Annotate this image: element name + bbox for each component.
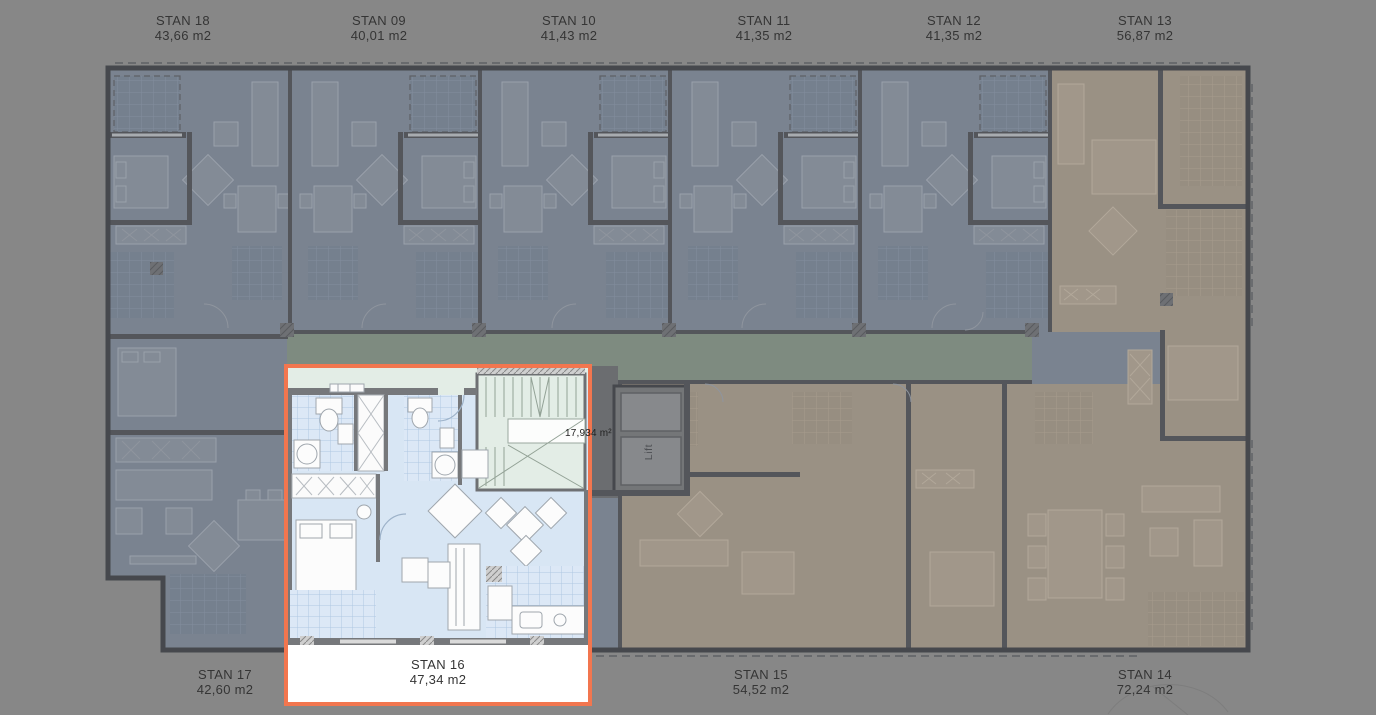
- apartment-area: 43,66 m2: [155, 28, 212, 43]
- apartment-area: 56,87 m2: [1117, 28, 1174, 43]
- apartment-area: 72,24 m2: [1117, 682, 1174, 697]
- apartment-stan-14-region[interactable]: [1007, 386, 1248, 650]
- label-stan-12: STAN 12 41,35 m2: [926, 13, 983, 43]
- apartment-stan-13-region[interactable]: [1052, 68, 1248, 330]
- label-stan-11: STAN 11 41,35 m2: [736, 13, 793, 43]
- apartment-stan-10-region[interactable]: [482, 68, 668, 332]
- apartment-name: STAN 13: [1117, 13, 1174, 28]
- apartment-stan-09-region[interactable]: [292, 68, 478, 332]
- apartment-area: 41,35 m2: [926, 28, 983, 43]
- apartment-name: STAN 12: [926, 13, 983, 28]
- apartment-stan-18-region[interactable]: [108, 68, 290, 368]
- apartment-area: 41,43 m2: [541, 28, 598, 43]
- label-stan-10: STAN 10 41,43 m2: [541, 13, 598, 43]
- label-stan-14: STAN 14 72,24 m2: [1117, 667, 1174, 697]
- apartment-area: 42,60 m2: [197, 682, 254, 697]
- apartment-name: STAN 17: [197, 667, 254, 682]
- apartment-name: STAN 16: [411, 657, 465, 672]
- apartment-name: STAN 09: [351, 13, 408, 28]
- label-stan-09: STAN 09 40,01 m2: [351, 13, 408, 43]
- selected-apartment-plan: [288, 368, 588, 645]
- selected-apartment-stan-16[interactable]: STAN 16 47,34 m2 17,934 m²: [284, 364, 592, 706]
- apartment-stan-12-region[interactable]: [862, 68, 1048, 332]
- floorplan-stage: Lift: [0, 0, 1376, 715]
- apartment-area: 40,01 m2: [351, 28, 408, 43]
- label-stan-18: STAN 18 43,66 m2: [155, 13, 212, 43]
- label-stan-15: STAN 15 54,52 m2: [733, 667, 790, 697]
- label-stan-17: STAN 17 42,60 m2: [197, 667, 254, 697]
- label-stan-13: STAN 13 56,87 m2: [1117, 13, 1174, 43]
- apartment-area: 54,52 m2: [733, 682, 790, 697]
- apartment-stan-11-region[interactable]: [672, 68, 858, 332]
- stairwell-area-label: 17,934 m²: [565, 428, 612, 439]
- apartment-stan-17-region[interactable]: [108, 435, 287, 650]
- apartment-area: 41,35 m2: [736, 28, 793, 43]
- apartment-name: STAN 18: [155, 13, 212, 28]
- apartment-area: 47,34 m2: [410, 672, 467, 687]
- apartment-name: STAN 11: [736, 13, 793, 28]
- apartment-stan-15-region[interactable]: [622, 386, 1005, 650]
- apartment-name: STAN 15: [733, 667, 790, 682]
- selected-apartment-drawing: [288, 368, 588, 645]
- apartment-name: STAN 14: [1117, 667, 1174, 682]
- apartment-name: STAN 10: [541, 13, 598, 28]
- selected-apartment-label: STAN 16 47,34 m2: [288, 649, 588, 702]
